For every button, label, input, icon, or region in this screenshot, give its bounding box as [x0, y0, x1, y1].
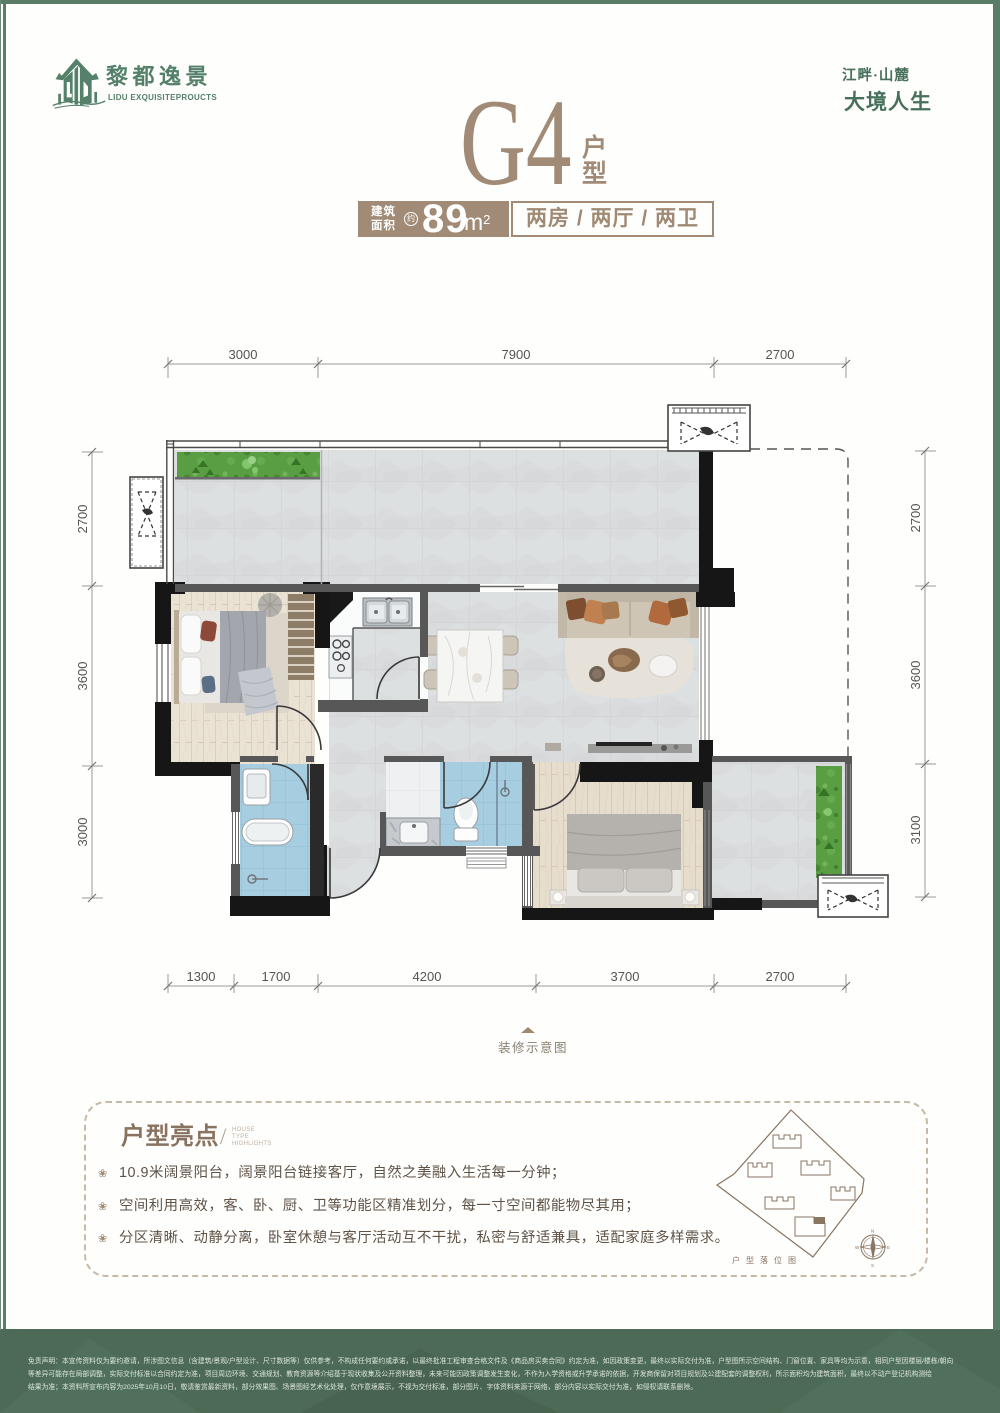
svg-text:1300: 1300 [187, 969, 216, 984]
svg-text:3600: 3600 [75, 662, 90, 691]
svg-text:2700: 2700 [766, 347, 795, 362]
svg-text:3600: 3600 [908, 661, 923, 690]
svg-text:户型落位图: 户型落位图 [732, 1255, 802, 1265]
svg-text:2700: 2700 [908, 504, 923, 533]
svg-text:3000: 3000 [229, 347, 258, 362]
svg-text:W: W [855, 1245, 860, 1250]
svg-text:3700: 3700 [611, 969, 640, 984]
svg-text:N: N [871, 1229, 874, 1234]
svg-text:E: E [887, 1245, 890, 1250]
svg-text:4200: 4200 [413, 969, 442, 984]
svg-text:2700: 2700 [766, 969, 795, 984]
svg-text:7900: 7900 [502, 347, 531, 362]
svg-text:3100: 3100 [908, 816, 923, 845]
svg-text:S: S [871, 1263, 874, 1268]
svg-text:1700: 1700 [262, 969, 291, 984]
svg-text:3000: 3000 [75, 818, 90, 847]
svg-text:2700: 2700 [75, 505, 90, 534]
